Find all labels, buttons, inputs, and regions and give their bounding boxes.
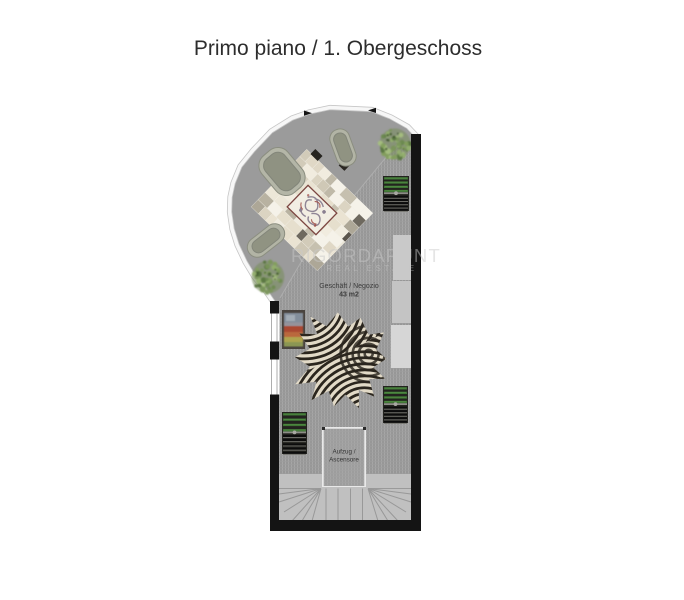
svg-text:Geschäft / Negozio: Geschäft / Negozio bbox=[319, 283, 379, 290]
svg-text:43 m2: 43 m2 bbox=[339, 292, 359, 299]
svg-text:RIGORDAPUNT: RIGORDAPUNT bbox=[291, 245, 441, 266]
svg-text:Aufzug /: Aufzug / bbox=[332, 449, 355, 456]
svg-text:Ascensore: Ascensore bbox=[329, 457, 359, 464]
svg-text:REAL ESTATE: REAL ESTATE bbox=[326, 264, 417, 273]
